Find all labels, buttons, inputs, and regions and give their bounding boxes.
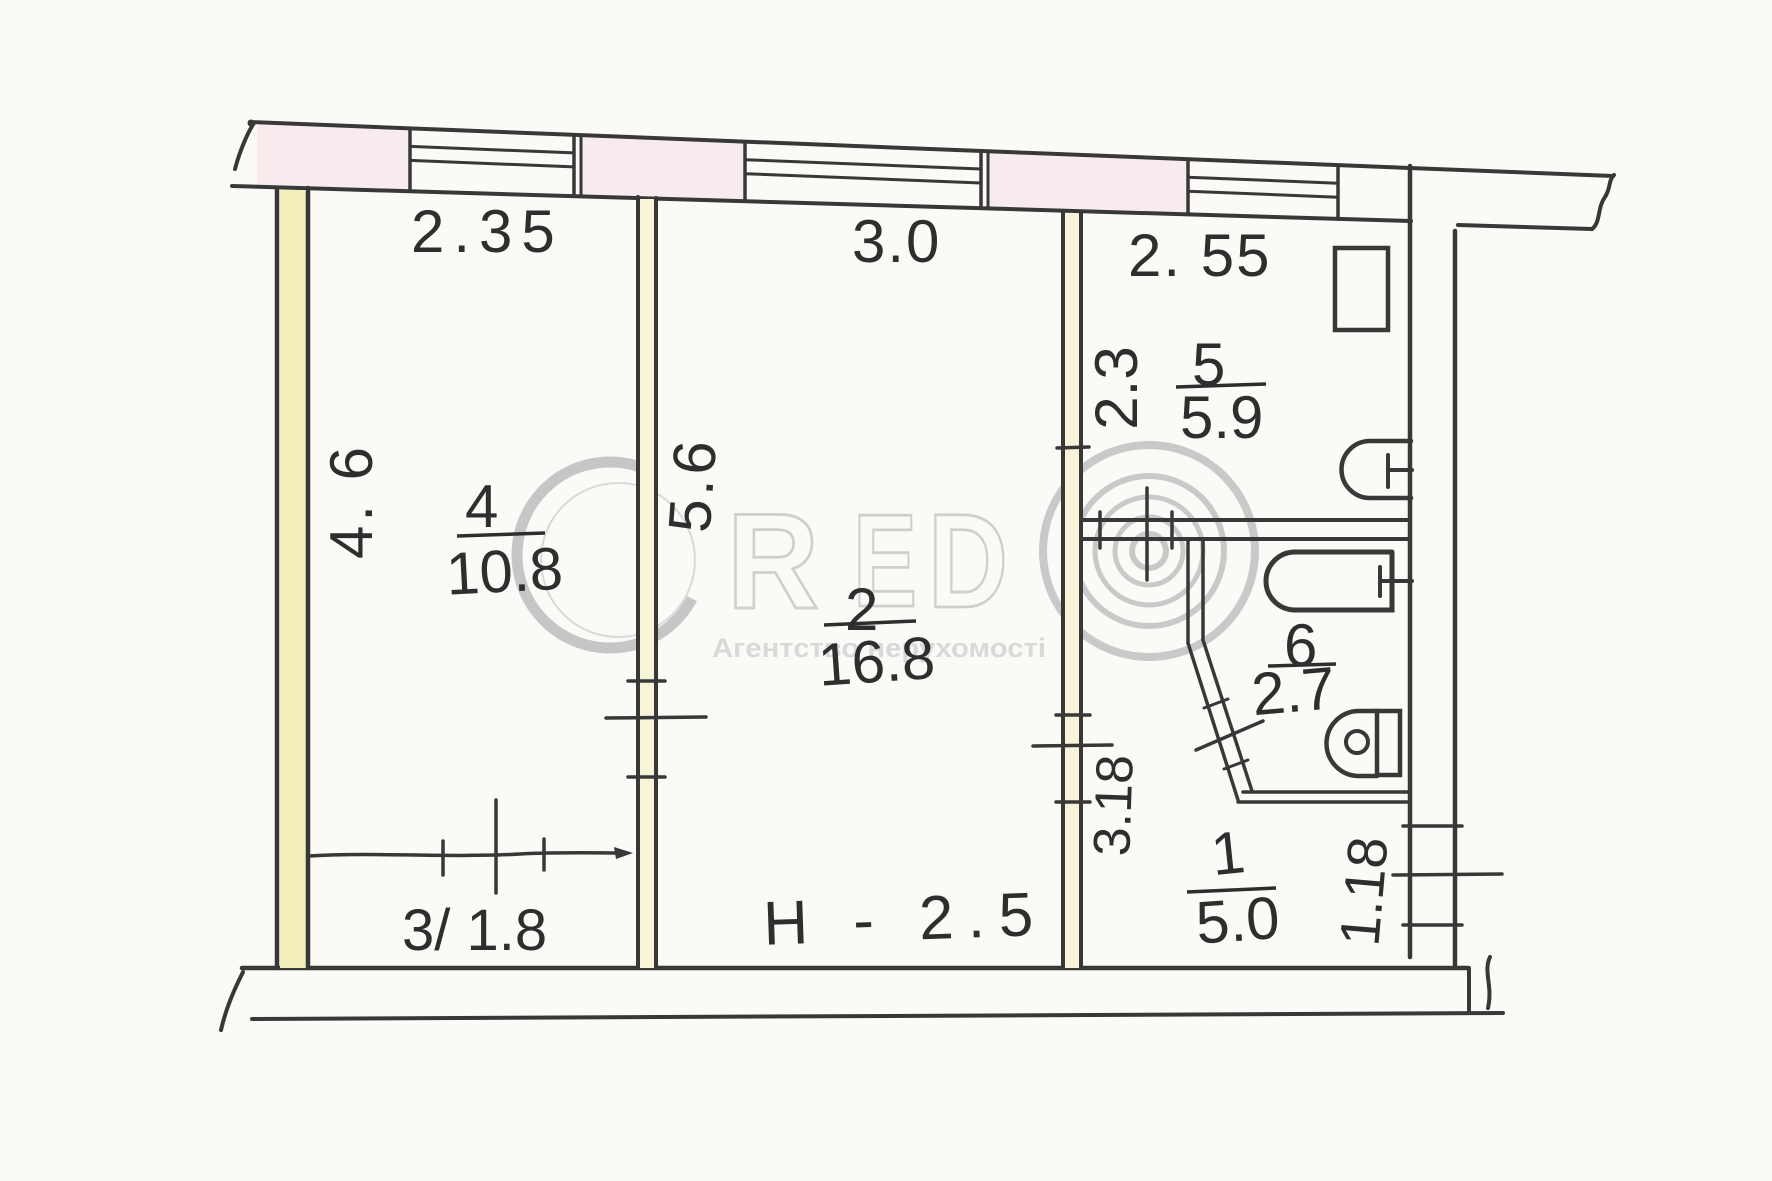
svg-text:2.3: 2.3	[1083, 346, 1150, 429]
svg-text:5.6: 5.6	[656, 435, 729, 535]
svg-text:1.18: 1.18	[1327, 834, 1399, 948]
svg-text:2.7: 2.7	[1249, 654, 1338, 728]
svg-text:1: 1	[1208, 818, 1248, 888]
svg-text:16.8: 16.8	[816, 624, 937, 699]
svg-text:2.35: 2.35	[411, 198, 564, 265]
svg-text:2. 55: 2. 55	[1128, 222, 1271, 289]
svg-text:3/ 1.8: 3/ 1.8	[402, 898, 547, 963]
svg-text:5.9: 5.9	[1180, 384, 1263, 451]
svg-text:4: 4	[465, 473, 498, 540]
svg-text:D: D	[928, 487, 1008, 636]
svg-text:10.8: 10.8	[444, 535, 564, 608]
svg-text:3.18: 3.18	[1083, 754, 1144, 857]
svg-text:5.0: 5.0	[1194, 884, 1282, 957]
svg-text:R: R	[727, 485, 819, 637]
svg-text:Н - 2.5: Н - 2.5	[762, 880, 1048, 959]
svg-text:4. 6: 4. 6	[318, 443, 385, 559]
svg-text:3.0: 3.0	[852, 208, 941, 275]
